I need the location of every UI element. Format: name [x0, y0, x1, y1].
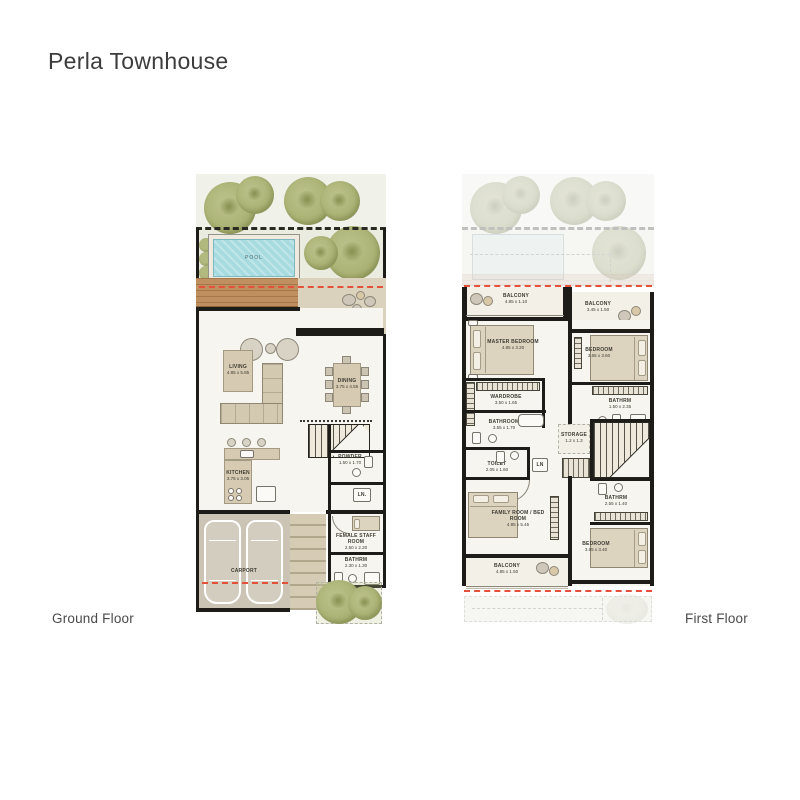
tree-icon	[320, 181, 360, 221]
closet-shelving	[594, 512, 648, 521]
stair-landing	[562, 458, 590, 478]
pool-water: POOL	[213, 239, 295, 277]
car	[246, 520, 283, 604]
ground-floor-plan: POOL LIVING4.85 x 5.85 DINING3.75 x 4.55…	[196, 174, 386, 626]
wall	[590, 522, 654, 525]
entry-canopy	[296, 328, 384, 336]
toilet-fixture	[472, 432, 481, 444]
wall	[590, 478, 654, 481]
closet-shelving	[592, 386, 648, 395]
wall	[464, 317, 568, 321]
balcony-front-label: BALCONY4.85 x 1.10	[490, 290, 542, 308]
sofa	[220, 403, 283, 424]
wall	[568, 476, 572, 586]
wall	[328, 552, 386, 555]
wall	[464, 447, 530, 450]
tree-icon	[236, 176, 274, 214]
bedroom3-label: BEDROOM3.65 x 3.40	[574, 538, 618, 556]
wall	[383, 334, 386, 587]
basin-fixture	[488, 434, 497, 443]
wall	[527, 447, 530, 480]
pillow	[354, 519, 360, 529]
ground-bathroom-label: BATHRM2.30 x 1.30	[330, 556, 382, 570]
balcony-front-right-label: BALCONY3.45 x 1.50	[574, 298, 622, 316]
armchair	[276, 338, 299, 361]
hob-burner	[228, 488, 234, 494]
tree-icon	[348, 586, 382, 620]
bathtub-fixture	[518, 414, 544, 427]
wall	[328, 425, 331, 513]
dining-chair	[342, 356, 351, 364]
setback-line	[464, 590, 652, 592]
family-room-label: FAMILY ROOM / BED ROOM4.85 x 5.45	[486, 509, 550, 529]
bar-stool	[242, 438, 251, 447]
wall	[462, 320, 466, 586]
bathroom2-label: BATHRM1.50 x 2.35	[596, 395, 644, 413]
balcony-railing	[466, 586, 568, 587]
hob-burner	[236, 495, 242, 501]
first-floor-plan: BALCONY4.85 x 1.10 BALCONY3.45 x 1.50 MA…	[462, 174, 654, 626]
storage-label: STORAGE1.2 x 1.3	[558, 430, 590, 446]
nightstand	[468, 320, 478, 326]
page-title: Perla Townhouse	[48, 48, 229, 75]
balcony-railing	[466, 315, 564, 316]
tree-icon	[304, 236, 338, 270]
basin-fixture	[352, 468, 361, 477]
garden-wall	[196, 227, 386, 230]
wall	[328, 482, 384, 485]
linen-label: LN	[532, 458, 548, 472]
stone	[631, 306, 641, 316]
setback-line	[199, 286, 383, 288]
wall	[326, 510, 386, 514]
car	[204, 520, 241, 604]
side-table	[265, 343, 276, 354]
stair-guard	[300, 420, 372, 422]
wall	[570, 580, 654, 584]
wall	[568, 320, 572, 424]
kitchen-label: KITCHEN3.75 x 3.05	[214, 468, 262, 484]
dining-chair	[342, 406, 351, 414]
stone	[549, 566, 559, 576]
hob-burner	[236, 488, 242, 494]
wall	[650, 292, 654, 332]
ghost-surroundings	[462, 174, 654, 286]
wardrobe-shelving	[476, 382, 540, 391]
stone	[364, 296, 376, 307]
staff-room-label: FEMALE STAFF ROOM2.50 x 2.20	[330, 530, 382, 554]
bar-stool	[227, 438, 236, 447]
linen-label: LN.	[353, 488, 371, 502]
dining-label: DINING3.75 x 4.55	[333, 374, 361, 394]
dresser	[550, 496, 559, 540]
bathroom3-label: BATHRM2.55 x 1.40	[592, 492, 640, 510]
wardrobe-shelving	[466, 382, 475, 426]
wall	[383, 228, 386, 280]
setback-line	[202, 582, 288, 584]
bar-stool	[257, 438, 266, 447]
wall	[196, 307, 300, 311]
dining-chair	[325, 393, 333, 402]
toilet-fixture	[364, 456, 373, 468]
stairs	[593, 422, 650, 478]
pool-label: POOL	[245, 255, 263, 261]
wall	[650, 332, 654, 586]
basin-fixture	[614, 483, 623, 492]
staff-bed	[352, 516, 380, 531]
ground-floor-label: Ground Floor	[52, 611, 134, 626]
wall	[464, 378, 544, 381]
bedroom2-label: BEDROOM3.65 x 3.60	[578, 344, 620, 362]
pool: POOL	[208, 234, 300, 282]
living-label: LIVING4.85 x 5.85	[221, 360, 255, 380]
sink-fixture	[240, 450, 254, 458]
first-floor-label: First Floor	[685, 611, 748, 626]
master-bedroom-label: MASTER BEDROOM4.85 x 3.20	[486, 336, 540, 354]
wall	[196, 608, 290, 612]
basin-fixture	[510, 451, 519, 460]
balcony-rear-label: BALCONY4.85 x 1.50	[481, 560, 533, 578]
wall	[464, 410, 546, 413]
hob-burner	[228, 495, 234, 501]
carport-label: CARPORT	[218, 566, 270, 576]
dining-chair	[361, 380, 369, 389]
stone	[536, 562, 549, 574]
dining-chair	[361, 393, 369, 402]
dining-chair	[325, 380, 333, 389]
wall	[568, 329, 654, 333]
fridge	[256, 486, 276, 502]
dining-chair	[325, 367, 333, 376]
wall	[196, 228, 199, 280]
wall	[328, 450, 384, 453]
ghost-carport	[462, 594, 654, 624]
wall	[572, 382, 654, 385]
toilet-fixture	[496, 451, 505, 463]
stone	[470, 293, 483, 305]
wardrobe-label: WARDROBE3.50 x 1.65	[483, 392, 529, 408]
dining-chair	[361, 367, 369, 376]
